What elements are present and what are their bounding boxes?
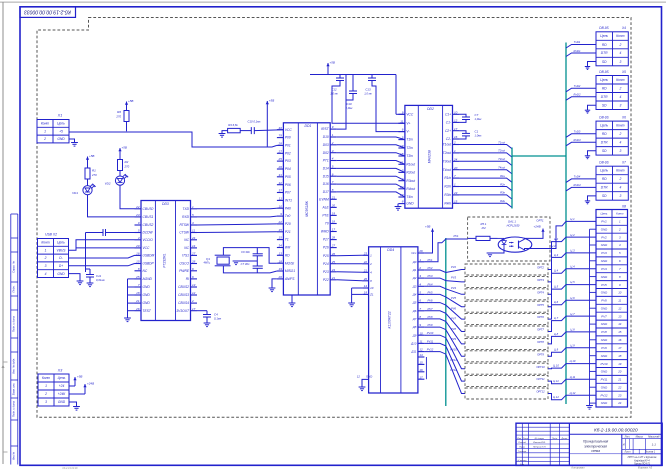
svg-text:Подп. и дата: Подп. и дата (12, 315, 16, 332)
svg-text:VCC: VCC (406, 112, 414, 116)
svg-text:11: 11 (192, 229, 195, 233)
svg-text:PV8: PV8 (601, 330, 607, 334)
svg-text:D10: D10 (323, 135, 329, 139)
svg-text:INT1: INT1 (285, 199, 292, 203)
svg-text:Кб-2-19.00.00.00020: Кб-2-19.00.00.00020 (594, 428, 638, 433)
svg-text:ОРТ12: ОРТ12 (536, 390, 545, 394)
svg-text:P04: P04 (285, 167, 291, 171)
svg-text:DTR: DTR (601, 95, 608, 99)
svg-text:3: 3 (619, 104, 621, 108)
svg-text:1,0мк: 1,0мк (346, 106, 354, 110)
svg-text:CBUS3: CBUS3 (178, 293, 189, 297)
svg-text:RD: RD (602, 177, 607, 181)
svg-text:электрическая: электрическая (584, 444, 607, 448)
svg-text:DTR: DTR (601, 51, 608, 55)
svg-text:С12: С12 (331, 88, 337, 92)
svg-text:T4out: T4out (443, 168, 452, 172)
svg-text:28: 28 (278, 142, 283, 146)
svg-text:GND: GND (58, 400, 66, 404)
svg-text:Ц.11: Ц.11 (570, 375, 576, 379)
svg-text:EVNM: EVNM (319, 197, 329, 201)
svg-text:P21: P21 (285, 230, 291, 234)
svg-text:Ц.3: Ц.3 (554, 253, 559, 257)
svg-text:Ц.10: Ц.10 (570, 359, 576, 363)
svg-text:22: 22 (363, 260, 368, 264)
svg-text:Масса: Масса (636, 436, 644, 439)
svg-text:23: 23 (453, 191, 458, 195)
svg-text:Масштаб: Масштаб (648, 436, 660, 439)
svg-text:D02: D02 (323, 151, 329, 155)
svg-text:15: 15 (136, 260, 140, 264)
svg-text:P20: P20 (285, 222, 291, 226)
svg-text:10: 10 (618, 291, 622, 295)
svg-text:+5В: +5В (330, 61, 335, 65)
svg-text:GND: GND (57, 272, 65, 276)
svg-text:Цепь: Цепь (58, 376, 66, 380)
svg-text:Д10: Д10 (410, 342, 417, 346)
svg-text:Ц.4: Ц.4 (554, 269, 559, 273)
svg-text:11: 11 (400, 119, 403, 123)
svg-text:17: 17 (332, 228, 336, 232)
svg-text:IRST: IRST (321, 127, 329, 131)
svg-text:HCPL2630: HCPL2630 (507, 224, 520, 228)
svg-text:GND: GND (601, 259, 607, 263)
svg-text:R4in: R4in (444, 201, 451, 205)
svg-text:18: 18 (279, 259, 283, 263)
svg-text:Ц.4: Ц.4 (570, 264, 575, 268)
svg-text:Кафедра ИУ-4: Кафедра ИУ-4 (634, 459, 650, 462)
svg-text:13: 13 (618, 314, 622, 318)
svg-text:P05: P05 (285, 175, 291, 179)
svg-text:25: 25 (331, 260, 336, 264)
svg-text:17: 17 (400, 193, 404, 197)
svg-text:18: 18 (136, 291, 140, 295)
svg-text:T4in: T4in (406, 195, 413, 199)
svg-text:Принципиальная: Принципиальная (583, 440, 608, 444)
svg-text:С6 30п: С6 30п (241, 250, 250, 254)
svg-text:Х8: Х8 (621, 205, 626, 209)
svg-text:GND: GND (601, 322, 607, 326)
svg-text:TEST: TEST (143, 309, 152, 313)
svg-text:24: 24 (191, 236, 196, 240)
svg-text:34: 34 (279, 244, 283, 248)
svg-text:19: 19 (279, 267, 283, 271)
svg-text:SD: SD (602, 194, 607, 198)
svg-text:+5: +5 (59, 129, 63, 133)
svg-text:Ц.1: Ц.1 (551, 244, 556, 248)
svg-text:GND: GND (601, 385, 607, 389)
svg-text:18: 18 (618, 354, 622, 358)
svg-text:DCDW: DCDW (143, 231, 154, 235)
svg-text:T3out: T3out (443, 159, 452, 163)
svg-text:PV9: PV9 (601, 346, 607, 350)
svg-text:PV10: PV10 (427, 331, 434, 335)
svg-text:DB-9S: DB-9S (599, 161, 609, 165)
svg-text:D14: D14 (323, 167, 329, 171)
svg-text:Ц.9: Ц.9 (554, 348, 559, 352)
svg-text:DD1: DD1 (305, 124, 312, 128)
svg-text:37: 37 (279, 189, 283, 193)
svg-text:RхD4: RхD4 (574, 183, 581, 187)
svg-text:RI: RI (186, 277, 189, 281)
svg-text:Копировал: Копировал (572, 466, 585, 470)
svg-text:23: 23 (617, 393, 622, 397)
svg-text:PV4: PV4 (601, 267, 607, 271)
svg-text:4: 4 (619, 141, 621, 145)
svg-text:PT1: PT1 (323, 159, 329, 163)
svg-text:Ц.1: Ц.1 (570, 217, 575, 221)
svg-text:Конт: Конт (616, 169, 625, 173)
svg-text:2М: 2М (481, 226, 487, 230)
svg-text:ОРТ10: ОРТ10 (536, 365, 545, 369)
svg-text:22: 22 (135, 205, 140, 209)
svg-text:16: 16 (618, 338, 622, 342)
svg-text:Д6: Д6 (412, 309, 417, 313)
svg-text:CTSW: CTSW (179, 231, 190, 235)
svg-text:DTR: DTR (601, 186, 608, 190)
svg-text:NC: NC (184, 238, 189, 242)
svg-text:PV2: PV2 (427, 266, 433, 270)
svg-text:19: 19 (400, 144, 404, 148)
svg-text:23: 23 (363, 251, 368, 255)
svg-text:P06: P06 (285, 183, 291, 187)
svg-text:PV6: PV6 (601, 299, 607, 303)
svg-text:10: 10 (454, 110, 458, 114)
svg-text:26: 26 (135, 307, 140, 311)
svg-text:PV2: PV2 (451, 265, 457, 269)
svg-text:TXD: TXD (183, 207, 190, 211)
svg-text:RD: RD (285, 253, 290, 257)
svg-text:20: 20 (331, 204, 336, 208)
svg-text:GND: GND (406, 202, 414, 206)
svg-text:21: 21 (331, 276, 336, 280)
svg-text:16: 16 (454, 135, 458, 139)
svg-text:Цепь: Цепь (57, 122, 65, 126)
svg-text:MO/SI: MO/SI (285, 261, 294, 265)
svg-text:T1: T1 (285, 238, 289, 242)
svg-text:10: 10 (419, 331, 423, 335)
svg-text:RD: RD (602, 43, 607, 47)
svg-text:Справ. №: Справ. № (12, 261, 16, 273)
svg-text:USB Х2: USB Х2 (45, 233, 57, 237)
svg-text:P25: P25 (323, 254, 329, 258)
svg-text:4: 4 (619, 95, 621, 99)
svg-text:Ц.7: Ц.7 (554, 316, 559, 320)
svg-text:20: 20 (363, 277, 368, 281)
svg-text:ОРТ11: ОРТ11 (536, 377, 545, 381)
svg-text:R3н: R3н (500, 191, 505, 195)
svg-text:Кб-2-19.00.00.00033: Кб-2-19.00.00.00033 (24, 9, 71, 15)
svg-text:24: 24 (453, 157, 458, 161)
svg-text:TхD1: TхD1 (574, 40, 581, 44)
svg-text:Инв. № дубл.: Инв. № дубл. (12, 358, 16, 374)
svg-text:CBUS0: CBUS0 (143, 207, 154, 211)
svg-text:PV10: PV10 (450, 348, 457, 352)
svg-text:15: 15 (419, 361, 423, 365)
svg-text:Конт: Конт (616, 78, 625, 82)
svg-text:+5В: +5В (77, 375, 82, 379)
svg-text:PV5: PV5 (601, 283, 607, 287)
svg-text:P24: P24 (323, 262, 329, 266)
svg-text:2: 2 (618, 132, 621, 136)
svg-text:ОРТ6: ОРТ6 (537, 315, 544, 319)
svg-text:GND: GND (601, 275, 607, 279)
svg-text:31: 31 (279, 173, 283, 177)
svg-text:VD1: VD1 (72, 191, 78, 195)
svg-text:12: 12 (454, 119, 458, 123)
svg-text:20: 20 (453, 166, 458, 170)
svg-text:19: 19 (364, 291, 368, 295)
svg-text:Д2: Д2 (412, 276, 417, 280)
svg-text:D16: D16 (323, 182, 329, 186)
svg-text:17: 17 (419, 375, 423, 379)
svg-text:14: 14 (618, 322, 622, 326)
svg-text:T4out: T4out (498, 166, 505, 170)
svg-text:Цепь: Цепь (600, 34, 608, 38)
svg-text:GND: GND (601, 243, 607, 247)
svg-text:Х4: Х4 (621, 26, 626, 30)
svg-text:19: 19 (618, 362, 622, 366)
svg-text:P00: P00 (285, 136, 291, 140)
svg-text:PA0: PA0 (285, 206, 291, 210)
svg-text:Лит.: Лит. (624, 436, 631, 439)
svg-text:PV9: PV9 (451, 337, 457, 341)
svg-text:AGND: AGND (142, 277, 153, 281)
svg-text:R3 6,8к: R3 6,8к (228, 123, 238, 127)
svg-text:13: 13 (279, 251, 283, 255)
svg-text:Группа ПС4-71: Группа ПС4-71 (634, 463, 651, 466)
svg-text:R2in: R2in (444, 185, 451, 189)
svg-text:C2-: C2- (446, 137, 452, 141)
svg-text:19: 19 (332, 212, 336, 216)
svg-text:10: 10 (370, 286, 374, 290)
svg-text:GND: GND (601, 338, 607, 342)
svg-text:RD: RD (602, 87, 607, 91)
svg-text:GND: GND (601, 401, 607, 405)
svg-text:Х7: Х7 (621, 161, 626, 165)
svg-text:28: 28 (191, 260, 196, 264)
svg-text:26: 26 (418, 249, 423, 253)
svg-text:3: 3 (619, 149, 621, 153)
svg-text:2: 2 (331, 141, 334, 145)
svg-text:PV12: PV12 (427, 348, 434, 352)
svg-text:2: 2 (618, 87, 621, 91)
svg-text:DB-9S: DB-9S (599, 70, 609, 74)
svg-text:ОРТ4: ОРТ4 (537, 290, 544, 294)
svg-text:Иванов И.В.: Иванов И.В. (533, 442, 546, 444)
svg-text:PV8: PV8 (427, 315, 433, 319)
svg-text:Z1: Z1 (369, 293, 374, 297)
svg-text:T2in: T2in (406, 146, 413, 150)
svg-text:ITS1: ITS1 (182, 254, 189, 258)
svg-text:GND: GND (601, 354, 607, 358)
svg-text:27: 27 (191, 252, 196, 256)
svg-text:12: 12 (357, 375, 361, 379)
svg-text:RхD2: RхD2 (574, 93, 581, 97)
svg-text:22: 22 (399, 185, 404, 189)
svg-text:P02: P02 (285, 151, 291, 155)
svg-text:P26: P26 (323, 246, 329, 250)
svg-text:Цепь: Цепь (600, 78, 608, 82)
svg-text:Д1: Д1 (412, 268, 417, 272)
svg-text:RхD1: RхD1 (574, 49, 581, 53)
svg-text:R2: R2 (125, 160, 129, 164)
svg-text:Н.контр.: Н.контр. (518, 460, 528, 462)
svg-text:+24: +24 (59, 384, 65, 388)
svg-text:4: 4 (619, 51, 621, 55)
svg-text:Подп. и дата: Подп. и дата (12, 400, 16, 417)
svg-text:CBUS2: CBUS2 (143, 223, 154, 227)
svg-text:40: 40 (279, 126, 283, 130)
svg-text:Х6: Х6 (621, 116, 626, 120)
svg-text:PV4: PV4 (427, 282, 433, 286)
svg-text:21: 21 (617, 378, 622, 382)
svg-text:27: 27 (331, 244, 336, 248)
svg-text:3V3OUT: 3V3OUT (176, 309, 190, 313)
svg-text:21: 21 (331, 195, 336, 199)
svg-text:VCC: VCC (143, 246, 151, 250)
svg-text:С10 0,1мк: С10 0,1мк (247, 120, 261, 124)
svg-text:Х1: Х1 (57, 114, 62, 118)
svg-text:С7: С7 (475, 113, 479, 117)
svg-text:+24К: +24К (58, 392, 67, 396)
svg-text:+24В: +24В (87, 382, 94, 386)
svg-text:Подп.: Подп. (552, 437, 558, 440)
svg-text:ОРТ3: ОРТ3 (537, 278, 544, 282)
svg-text:2: 2 (44, 392, 47, 396)
svg-text:Ncc: Ncc (411, 251, 417, 255)
svg-text:Ц.3: Ц.3 (570, 249, 575, 253)
svg-text:MC9S1BK: MC9S1BK (305, 200, 309, 217)
svg-text:Лист: Лист (623, 452, 630, 454)
svg-text:R1: R1 (92, 169, 96, 173)
svg-text:+5В: +5В (128, 99, 133, 103)
svg-text:Изм: Изм (517, 438, 522, 440)
svg-text:PV4: PV4 (451, 286, 457, 290)
svg-text:Ц.8: Ц.8 (554, 332, 559, 336)
svg-text:1: 1 (44, 129, 46, 133)
svg-text:AN/FS: AN/FS (284, 277, 295, 281)
svg-text:15: 15 (454, 199, 458, 203)
svg-text:К1109КТ22: К1109КТ22 (388, 311, 392, 328)
svg-text:OSCO: OSCO (179, 262, 189, 266)
svg-text:VCCIO: VCCIO (143, 238, 154, 242)
svg-text:ОРТ7: ОРТ7 (537, 328, 544, 332)
svg-text:2: 2 (618, 43, 621, 47)
svg-text:ОРТ5: ОРТ5 (537, 303, 544, 307)
svg-text:T1out: T1out (498, 140, 505, 144)
svg-text:14: 14 (364, 284, 368, 288)
svg-text:R3out: R3out (406, 179, 416, 183)
svg-text:CBUS2: CBUS2 (178, 285, 189, 289)
svg-text:CBUS4: CBUS4 (178, 301, 189, 305)
svg-text:2: 2 (43, 137, 46, 141)
svg-text:Инв.№: Инв.№ (12, 452, 16, 460)
svg-text:+5В: +5В (122, 146, 127, 150)
svg-text:TхD2: TхD2 (574, 84, 581, 88)
svg-text:R3in: R3in (444, 193, 451, 197)
svg-text:Конт: Конт (41, 241, 50, 245)
svg-text:V+: V+ (406, 121, 410, 125)
svg-text:PV8: PV8 (451, 327, 457, 331)
svg-text:P23: P23 (323, 270, 329, 274)
svg-text:PV3: PV3 (601, 251, 607, 255)
svg-text:24: 24 (617, 401, 622, 405)
svg-text:ОРТ8: ОРТ8 (537, 340, 544, 344)
svg-text:R4out: R4out (406, 187, 416, 191)
svg-text:Ц.11: Ц.11 (553, 379, 559, 383)
svg-text:USBDM: USBDM (143, 254, 155, 258)
svg-text:DD4: DD4 (387, 248, 394, 252)
svg-text:Ц.6: Ц.6 (570, 296, 575, 300)
svg-text:Ц.5: Ц.5 (554, 284, 559, 288)
svg-text:17: 17 (454, 127, 458, 131)
svg-text:14: 14 (419, 353, 423, 357)
svg-text:RXD: RXD (182, 215, 190, 219)
svg-text:Кб-2-19.00.00: Кб-2-19.00.00 (63, 467, 79, 470)
svg-text:PV5: PV5 (451, 296, 457, 300)
svg-text:TхD3: TхD3 (574, 130, 581, 134)
svg-text:1,0 мк: 1,0 мк (364, 92, 372, 96)
svg-text:Ц.9: Ц.9 (570, 343, 575, 347)
svg-text:21: 21 (363, 268, 368, 272)
svg-text:PV6: PV6 (427, 299, 433, 303)
svg-text:Формат А3: Формат А3 (638, 466, 653, 470)
svg-text:11: 11 (618, 299, 621, 303)
svg-text:D17: D17 (323, 190, 329, 194)
svg-text:18: 18 (332, 220, 336, 224)
svg-text:14: 14 (192, 244, 196, 248)
svg-text:Q1: Q1 (206, 257, 210, 261)
svg-text:P27: P27 (323, 238, 329, 242)
svg-text:2: 2 (453, 141, 456, 145)
svg-text:D+: D+ (59, 264, 63, 268)
svg-text:VBUS: VBUS (57, 248, 67, 252)
svg-text:Цепь: Цепь (600, 124, 608, 128)
svg-text:3: 3 (45, 400, 47, 404)
svg-text:ОРТ9: ОРТ9 (537, 352, 544, 356)
svg-text:PV1: PV1 (601, 220, 607, 224)
svg-text:SD: SD (602, 149, 607, 153)
svg-text:DD3: DD3 (162, 202, 169, 206)
svg-text:4МГц: 4МГц (204, 261, 211, 265)
svg-text:№ докум.: № докум. (535, 437, 545, 440)
svg-text:+5В: +5В (425, 225, 430, 229)
svg-text:Д5: Д5 (412, 301, 417, 305)
svg-text:PV2: PV2 (601, 235, 607, 239)
svg-text:С10: С10 (346, 102, 352, 106)
svg-text:VCC: VCC (285, 128, 293, 132)
svg-text:PV6: PV6 (451, 306, 457, 310)
svg-text:DB-9S: DB-9S (599, 116, 609, 120)
svg-text:25: 25 (278, 157, 283, 161)
svg-text:270: 270 (115, 115, 121, 119)
svg-text:Х5: Х5 (621, 70, 626, 74)
svg-text:GND: GND (143, 293, 151, 297)
svg-text:GND: GND (143, 285, 151, 289)
svg-text:79: 79 (279, 134, 283, 138)
svg-text:R2out: R2out (406, 171, 416, 175)
svg-text:GND: GND (601, 227, 607, 231)
svg-text:USBDP: USBDP (143, 262, 155, 266)
svg-text:Д8: Д8 (412, 325, 417, 329)
svg-text:Конт: Конт (616, 212, 624, 216)
svg-text:28: 28 (331, 236, 336, 240)
svg-text:T2out: T2out (498, 149, 505, 153)
svg-text:NC: NC (143, 269, 148, 273)
svg-text:PTE: PTE (322, 214, 329, 218)
svg-text:16: 16 (419, 368, 423, 372)
